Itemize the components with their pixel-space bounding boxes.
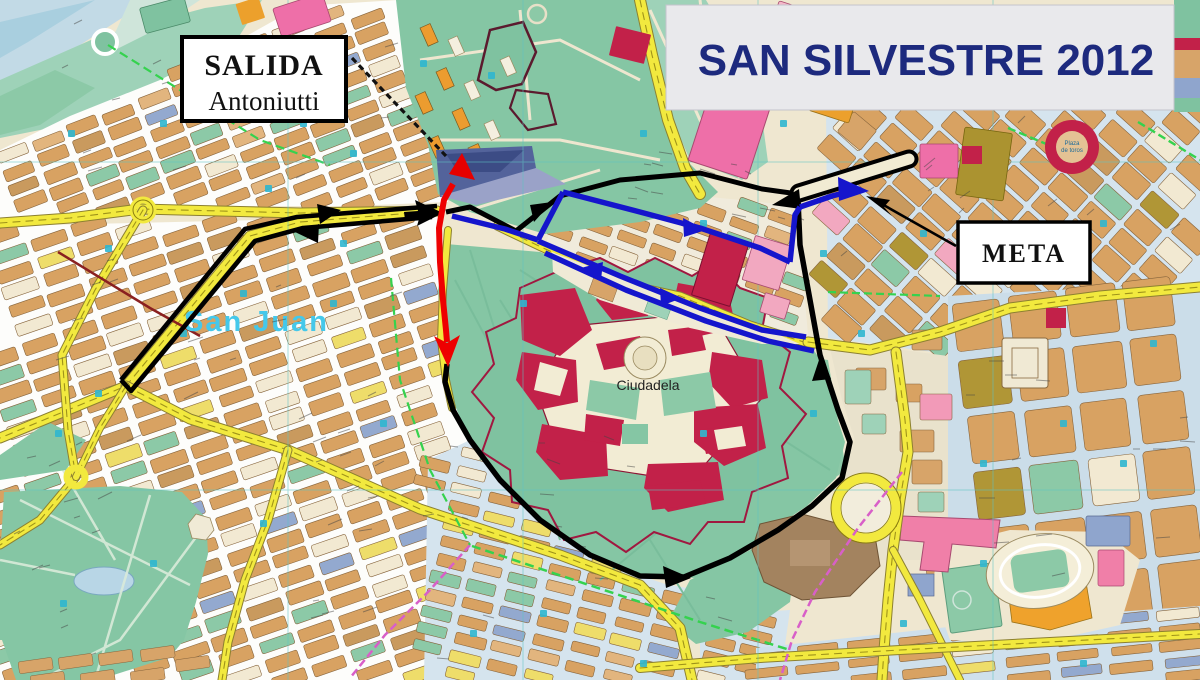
svg-text:Ciudadela: Ciudadela	[616, 377, 679, 393]
svg-text:META: META	[982, 239, 1066, 268]
svg-text:de toros: de toros	[1061, 148, 1083, 154]
svg-text:SALIDA: SALIDA	[204, 49, 323, 82]
svg-text:SAN SILVESTRE 2012: SAN SILVESTRE 2012	[698, 36, 1154, 85]
svg-text:Antoniutti: Antoniutti	[208, 86, 319, 116]
svg-text:San Juan: San Juan	[184, 306, 329, 338]
svg-text:Plaza: Plaza	[1064, 141, 1080, 147]
